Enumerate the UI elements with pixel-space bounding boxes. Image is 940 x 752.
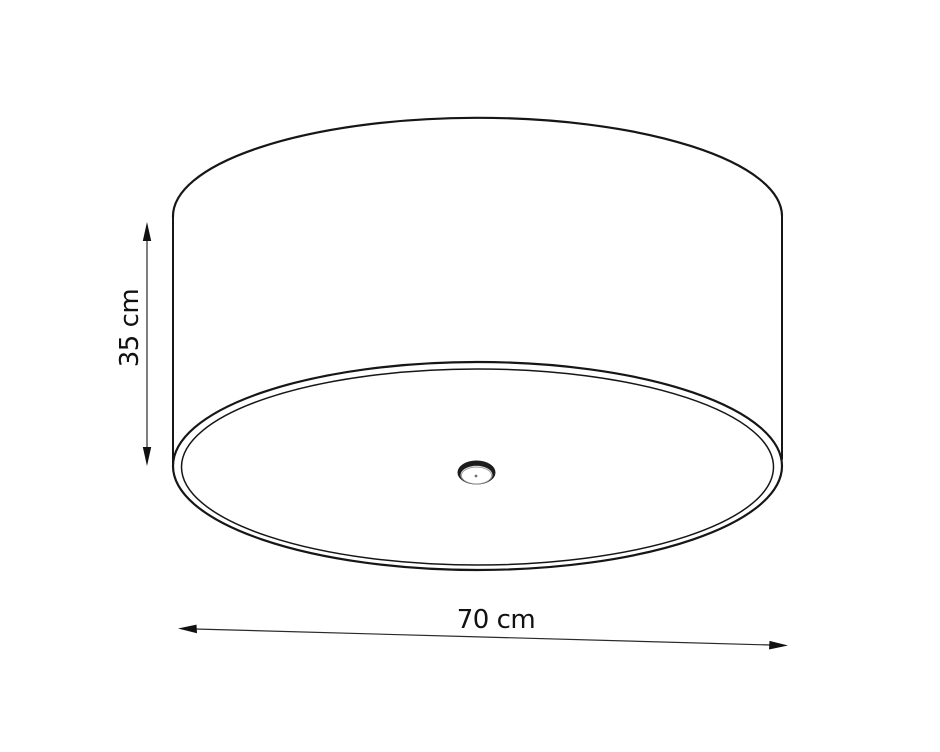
arrow-up-icon — [143, 222, 151, 241]
center-finial-knob — [458, 461, 496, 485]
arrow-right-icon — [769, 641, 788, 650]
height-dimension-label: 35 cm — [115, 289, 145, 367]
lamp-dimension-drawing: 35 cm 70 cm — [0, 0, 940, 752]
arrow-left-icon — [178, 625, 197, 634]
diameter-dimension-label: 70 cm — [457, 605, 535, 635]
finial-center-dot — [475, 475, 478, 478]
lamp-shade-body — [173, 118, 782, 570]
technical-drawing-canvas: 35 cm 70 cm — [0, 0, 940, 752]
height-dimension: 35 cm — [115, 222, 151, 466]
arrow-down-icon — [143, 447, 151, 466]
diameter-dimension: 70 cm — [178, 605, 788, 650]
shade-top-rim-arc — [173, 118, 782, 217]
